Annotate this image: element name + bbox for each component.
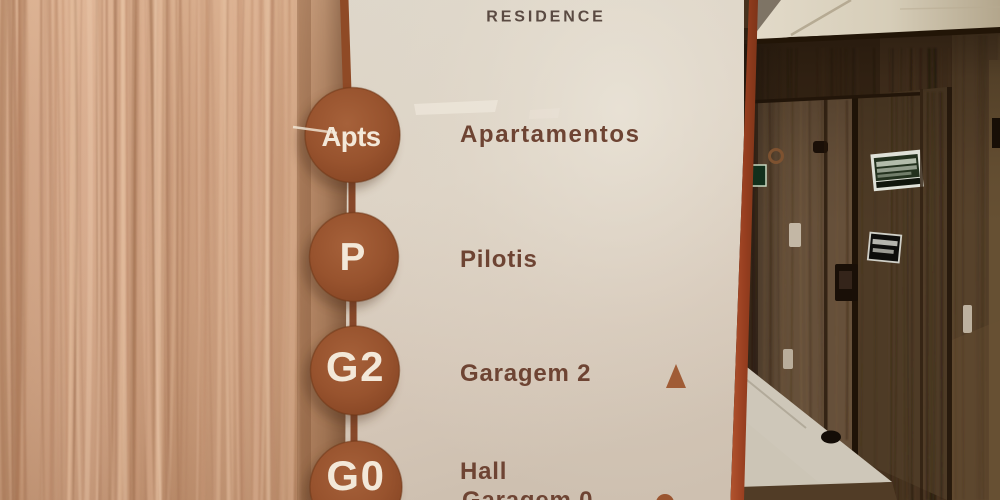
svg-text:Hall: Hall [460, 458, 507, 485]
svg-text:Garagem 0: Garagem 0 [462, 487, 593, 500]
svg-text:Apartamentos: Apartamentos [460, 121, 641, 148]
svg-text:G0: G0 [326, 452, 385, 499]
svg-text:Pilotis: Pilotis [460, 246, 538, 273]
svg-text:Garagem 2: Garagem 2 [460, 360, 591, 387]
svg-text:RESIDENCE: RESIDENCE [486, 9, 605, 26]
svg-text:G2: G2 [326, 343, 385, 390]
svg-text:P: P [340, 236, 366, 279]
svg-text:Apts: Apts [321, 121, 380, 152]
